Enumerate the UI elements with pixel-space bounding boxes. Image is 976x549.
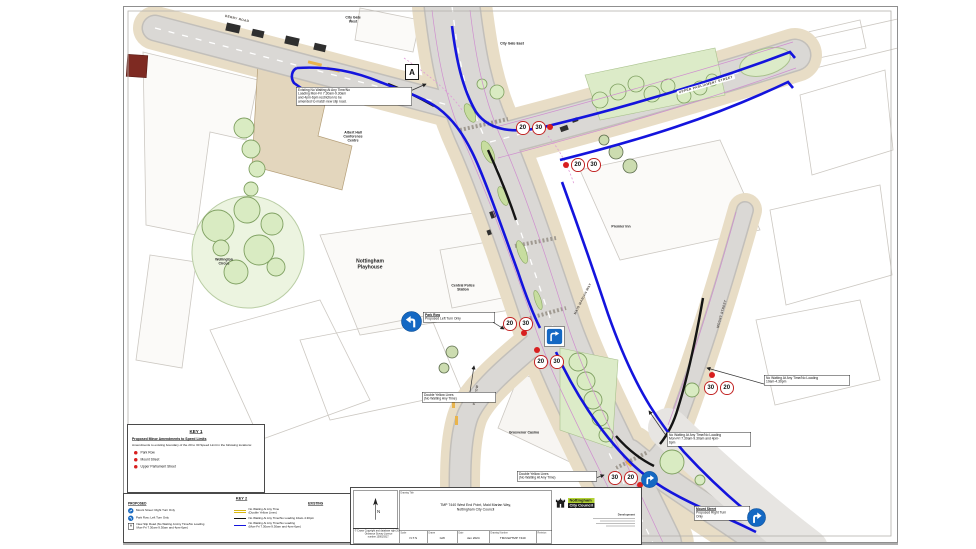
council-logo: Nottingham City Council: [555, 498, 639, 509]
key2-item-label: No Waiting At Any Time/No Loading 10am-4…: [249, 517, 315, 520]
key1-item: Upper Parliament Street: [134, 465, 258, 469]
ncc-castle-icon: [555, 498, 566, 509]
field-drawn: DrawnGW: [428, 531, 458, 543]
field-label: Scale: [401, 532, 407, 535]
key2-item-label: No Waiting At Any Time (Double Yellow Li…: [249, 508, 280, 515]
field-label: Revision: [538, 532, 547, 535]
slip-road-a-icon: A: [128, 523, 134, 530]
key2-existing-items: No Waiting At Any Time (Double Yellow Li…: [234, 508, 359, 529]
blue-line-symbol: [234, 525, 246, 526]
key2-item-label: New Slip Road (No Waiting At Any Time/No…: [137, 523, 205, 530]
key2-title: KEY 2: [124, 496, 359, 501]
svg-text:N: N: [377, 509, 380, 514]
key2-existing-item: No Waiting At Any Time/No Loading (Mon-F…: [234, 522, 359, 529]
north-arrow-icon: N: [370, 493, 382, 525]
red-dot-icon: [134, 465, 138, 469]
logo-dept: Development: [552, 514, 635, 517]
field-label: Drawn: [429, 532, 436, 535]
title-block: N © Crown Copyright and database right 2…: [350, 487, 642, 545]
key2-proposed-item: ANew Slip Road (No Waiting At Any Time/N…: [128, 523, 234, 530]
drawing-title-line2: Nottingham City Council: [400, 508, 552, 513]
drawing-fields: ScaleN.T.SDrawnGWDateJan 2024Drawing Num…: [399, 531, 552, 544]
key1-title: KEY 1: [128, 429, 264, 434]
drawing-title-label: Drawing Title: [401, 492, 414, 495]
key1-items: Park RowMount StreetUpper Parliament Str…: [128, 451, 264, 469]
field-value: TM/GW/TMP 7440: [490, 537, 537, 541]
double-yellow-symbol: [234, 510, 246, 513]
key2-item-label: No Waiting At Any Time/No Loading (Mon-F…: [249, 522, 302, 529]
key1-item: Park Row: [134, 451, 258, 455]
field-drawing-number: Drawing NumberTM/GW/TMP 7440: [490, 531, 537, 543]
black-line-symbol: [234, 518, 246, 519]
key1-heading: Proposed Minor Amendments to Speed Limit…: [132, 438, 260, 442]
field-value: Jan 2024: [458, 537, 490, 541]
left-turn-icon: [128, 516, 134, 522]
key2-item-label: Mount Street: Right Turn Only: [136, 509, 175, 512]
key2-proposed-items: Mount Street: Right Turn OnlyPark Row: L…: [128, 508, 234, 530]
key1-item-label: Mount Street: [141, 458, 160, 462]
red-dot-icon: [134, 451, 138, 455]
key2-proposed-item: Mount Street: Right Turn Only: [128, 508, 234, 514]
key1-description: Amendments to existing boundary of the 2…: [132, 444, 260, 448]
red-dot-icon: [134, 458, 138, 462]
key2-existing-item: No Waiting At Any Time (Double Yellow Li…: [234, 508, 359, 515]
turn-sign-icon: [128, 508, 134, 514]
logo-text-city-council: City Council: [568, 503, 594, 508]
north-arrow-box: N: [353, 491, 398, 529]
turn-sign-icon: [128, 516, 134, 522]
key2-proposed-item: Park Row: Left Turn Only: [128, 516, 234, 522]
key2-panel: KEY 2 PROPOSED Mount Street: Right Turn …: [123, 493, 360, 543]
key1-item-label: Upper Parliament Street: [141, 465, 176, 469]
field-label: Drawing Number: [491, 532, 508, 535]
copyright-box: © Crown Copyright and database right 202…: [353, 529, 404, 544]
field-value: N.T.S: [400, 537, 428, 541]
key2-existing-item: No Waiting At Any Time/No Loading 10am-4…: [234, 517, 359, 520]
council-logo-box: Nottingham City Council Development: [552, 491, 639, 543]
right-turn-icon: [128, 508, 134, 514]
key2-proposed-header: PROPOSED: [128, 502, 234, 506]
field-scale: ScaleN.T.S: [400, 531, 428, 543]
copyright-line: number 100019317.: [354, 536, 404, 539]
key2-item-label: Park Row: Left Turn Only: [136, 517, 169, 520]
key1-panel: KEY 1 Proposed Minor Amendments to Speed…: [127, 424, 265, 493]
field-date: DateJan 2024: [458, 531, 490, 543]
key1-item: Mount Street: [134, 458, 258, 462]
drawing-title-box: Drawing Title TMP 7440 West End Point, M…: [399, 491, 552, 532]
traffic-scheme-drawing: DERBY ROADCity Gate WestCity Gate EastUP…: [0, 0, 976, 549]
field-label: Date: [459, 532, 464, 535]
key1-item-label: Park Row: [141, 451, 155, 455]
field-revision: Revision: [537, 531, 552, 543]
field-value: GW: [428, 537, 458, 541]
